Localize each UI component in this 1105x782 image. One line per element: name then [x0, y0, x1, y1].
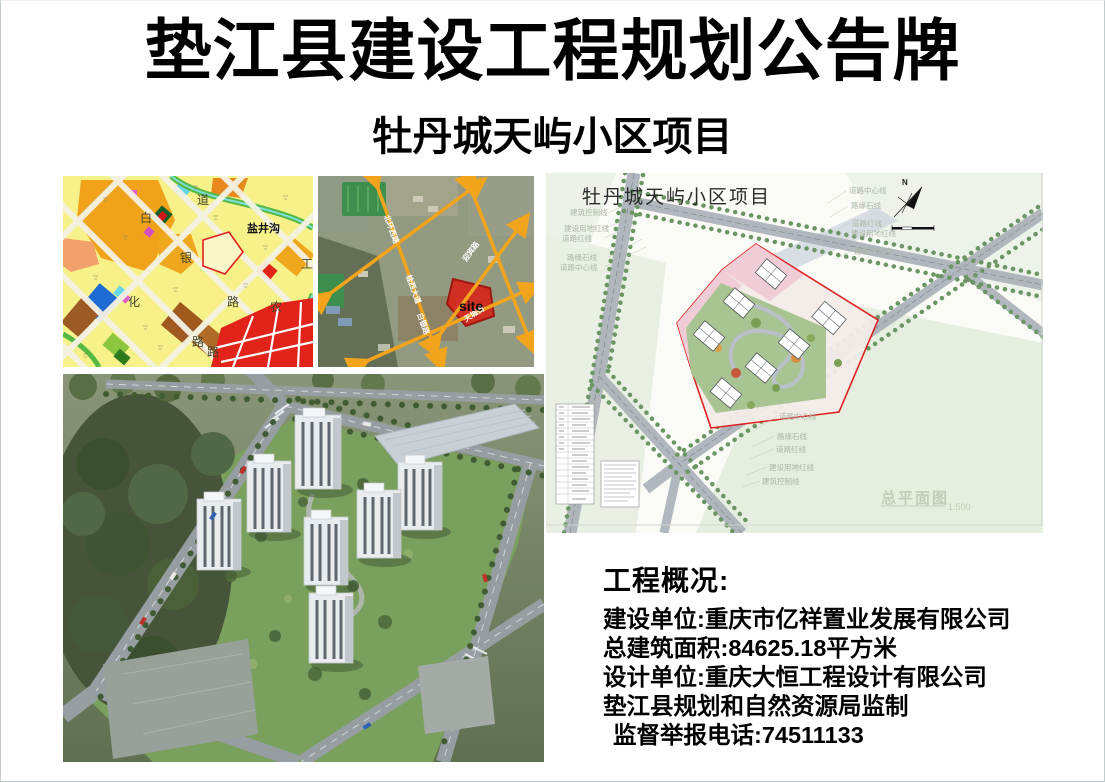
line-label: 路缘石线 [851, 200, 881, 210]
zoning-char: 路 [227, 294, 239, 309]
project-info-block: 工程概况: 建设单位:重庆市亿祥置业发展有限公司 总建筑面积:84625.18平… [603, 559, 1093, 750]
plan-legend-table [556, 404, 594, 504]
north-label: N [902, 178, 908, 187]
aerial-service-pad [418, 656, 495, 734]
line-label: 道路中心线 [849, 185, 887, 195]
satellite-map-image: 北环西路 桂西大道 白银路 迎宾路 天城街 site [318, 176, 534, 367]
info-heading: 工程概况: [603, 559, 1093, 599]
zoning-char: 工 [301, 257, 313, 271]
zoning-char: 银 [180, 251, 192, 265]
plan-title: 牡丹城天屿小区项目 [582, 186, 771, 208]
zoning-char: 道 [197, 193, 209, 207]
line-label: 建设用地红线 [851, 228, 896, 238]
site-plan-image: N 建筑控制线 建设用地红线 道路红线 路缘石线 道路中心线 道路中心线 路缘石… [546, 173, 1043, 533]
drawing-scale: 1:500 [948, 502, 971, 512]
zoning-char: 化 [128, 295, 140, 309]
line-label: 道路中心线 [779, 411, 817, 421]
zoning-stream-label: 盐井沟 [247, 221, 280, 235]
line-label: 道路中心线 [560, 262, 598, 272]
line-label: 路缘石线 [777, 431, 807, 441]
zoning-char: 白 [140, 210, 152, 225]
line-label: 建筑控制线 [854, 246, 892, 256]
line-label: 道路红线 [852, 218, 882, 228]
announcement-board: 垫江县建设工程规划公告牌 牡丹城天屿小区项目 [0, 0, 1105, 782]
line-label: 建设用地红线 [564, 223, 609, 233]
zoning-char: 农 [270, 300, 282, 314]
site-label: site [459, 298, 483, 314]
info-supervising-bureau: 垫江县规划和自然资源局监制 [603, 692, 1093, 721]
project-subtitle: 牡丹城天屿小区项目 [1, 104, 1104, 162]
info-report-hotline: 监督举报电话:74511133 [603, 721, 1093, 750]
info-construction-unit: 建设单位:重庆市亿祥置业发展有限公司 [603, 605, 1093, 634]
zoning-char: 路 [192, 334, 204, 349]
zoning-char: 路 [207, 344, 219, 359]
line-label: 建筑控制线 [762, 476, 800, 486]
zoning-map-image: 道 白 盐井沟 银 工 化 路 农 路 路 [63, 176, 313, 367]
page-title: 垫江县建设工程规划公告牌 [1, 15, 1104, 89]
line-label: 道路红线 [562, 233, 592, 243]
info-design-unit: 设计单位:重庆大恒工程设计有限公司 [603, 663, 1093, 692]
drawing-title: 总平面图 [881, 489, 949, 507]
line-label: 建筑控制线 [570, 207, 608, 217]
info-total-floor-area: 总建筑面积:84625.18平方米 [603, 634, 1093, 663]
plan-notes-box [601, 461, 639, 507]
line-label: 建设用地红线 [769, 462, 814, 472]
aerial-rendering-image [63, 374, 544, 762]
line-label: 道路红线 [776, 444, 806, 454]
line-label: 路缘石线 [567, 252, 597, 262]
